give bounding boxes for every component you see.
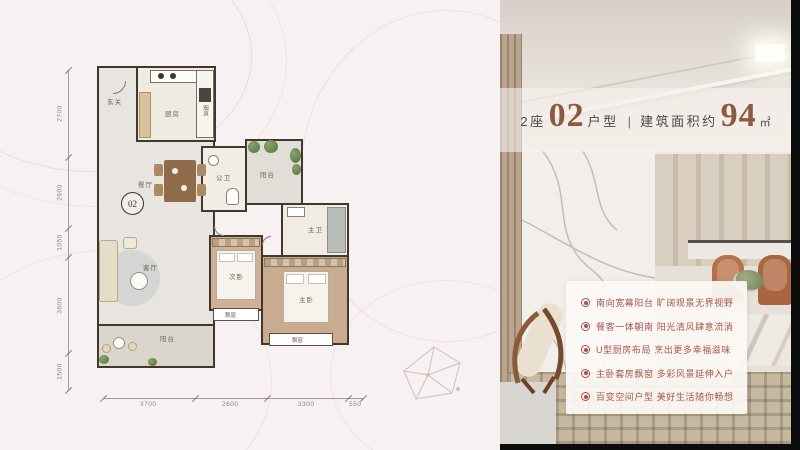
block-label: 2座 <box>520 111 545 130</box>
door-arc <box>262 236 280 254</box>
bottom-edge-bar <box>500 444 791 450</box>
cooktop-icon <box>158 73 164 79</box>
room-label-dining: 餐厅 <box>138 179 153 189</box>
balcony-chair-icon <box>102 344 111 353</box>
plant-icon <box>248 141 260 153</box>
dim-2700: 2700 <box>57 105 64 121</box>
washbasin-icon <box>287 207 305 217</box>
plate-icon <box>172 168 178 174</box>
feature-text: 百变空间户型 美好生活随你畅想 <box>596 390 734 403</box>
area-unit: ㎡ <box>760 114 771 130</box>
room-label-kitchen: 厨房 <box>165 108 180 118</box>
kitchen-sink-icon <box>199 88 211 102</box>
cooktop-icon <box>170 73 176 79</box>
dim-3700: 3700 <box>140 401 156 408</box>
wardrobe-icon <box>264 258 346 267</box>
plant-icon <box>99 355 109 364</box>
feature-card: 南向宽幕阳台 旷阔观景无界视野 餐客一体朝南 阳光清风肆意流淌 U型厨房布局 烹… <box>566 281 747 414</box>
room-label-balcony-bottom: 阳台 <box>160 333 175 343</box>
dining-chair-icon <box>197 184 206 196</box>
room-label-balcony-top: 阳台 <box>260 169 275 179</box>
washbasin-icon <box>208 155 219 166</box>
dining-chair-icon <box>154 164 163 176</box>
room-label-master-bedroom: 主卧 <box>299 294 314 304</box>
room-label-bedroom-2: 次卧 <box>229 271 244 281</box>
interior-photo: 2座 02 户型 | 建筑面积约 94 ㎡ 南向宽幕阳台 旷阔观景无界视野 餐客… <box>500 0 791 444</box>
sofa <box>99 240 118 302</box>
crystal-doodle <box>398 345 470 407</box>
feature-row: 主卧套房飘窗 多彩风景延伸入户 <box>581 367 747 380</box>
kitchen-cabinet-left <box>139 92 151 138</box>
bullet-icon <box>581 392 590 401</box>
unit-type-label: 户型 <box>588 111 619 130</box>
coffee-table <box>130 272 148 290</box>
dimension-line-left <box>68 70 69 390</box>
bullet-icon <box>581 298 590 307</box>
dimension-tick <box>65 387 72 394</box>
dimension-line-bottom <box>103 398 363 399</box>
dim-2600-left: 2600 <box>57 184 64 200</box>
pillow-icon <box>286 274 304 284</box>
dining-chair-icon <box>154 184 163 196</box>
armchair-icon <box>123 237 137 249</box>
unit-number-badge: 02 <box>121 192 144 215</box>
feature-text: U型厨房布局 烹出更多幸福滋味 <box>596 343 731 356</box>
ceiling-light-icon <box>755 44 785 62</box>
unit-title: 2座 02 户型 | 建筑面积约 94 ㎡ <box>500 97 791 135</box>
dim-2600: 2600 <box>222 401 238 408</box>
feature-text: 南向宽幕阳台 旷阔观景无界视野 <box>596 296 734 309</box>
area-label: 建筑面积约 <box>640 111 718 130</box>
feature-row: 南向宽幕阳台 旷阔观景无界视野 <box>581 296 747 309</box>
balcony-chair-icon <box>128 342 137 351</box>
bullet-icon <box>581 345 590 354</box>
dim-1050: 1050 <box>57 234 64 250</box>
feature-text: 主卧套房飘窗 多彩风景延伸入户 <box>596 367 734 380</box>
pillow-icon <box>237 253 253 262</box>
bullet-icon <box>581 369 590 378</box>
title-divider: | <box>628 114 631 129</box>
dining-chair-icon <box>197 164 206 176</box>
chair-cushion <box>763 259 787 291</box>
feature-text: 餐客一体朝南 阳光清风肆意流淌 <box>596 320 734 333</box>
plant-icon <box>290 148 301 163</box>
plate-icon <box>181 185 187 191</box>
room-label-flue: 烟道 <box>201 105 209 116</box>
room-label-bay-master: 飘窗 <box>292 336 303 344</box>
dining-table <box>164 160 196 202</box>
shower-icon <box>327 207 346 253</box>
room-label-master-bath: 主卫 <box>308 224 323 234</box>
dim-550: 550 <box>349 401 361 408</box>
right-edge-bar <box>791 0 800 450</box>
room-label-living: 客厅 <box>143 262 158 272</box>
pillow-icon <box>308 274 326 284</box>
balcony-table-icon <box>113 337 125 349</box>
area-value: 94 <box>718 97 760 135</box>
wardrobe-icon <box>212 238 260 247</box>
toilet-icon <box>226 188 239 205</box>
plant-icon <box>148 358 157 366</box>
plant-icon <box>264 140 278 153</box>
room-label-entry: 玄关 <box>107 96 122 106</box>
plant-icon <box>292 164 301 175</box>
pillow-icon <box>219 253 235 262</box>
feature-row: U型厨房布局 烹出更多幸福滋味 <box>581 343 747 356</box>
feature-row: 百变空间户型 美好生活随你畅想 <box>581 390 747 403</box>
poster: 玄关 厨房 烟道 公卫 阳台 餐厅 客厅 主卫 次卧 飘窗 主卧 飘窗 阳台 0… <box>0 0 800 450</box>
room-label-guest-bath: 公卫 <box>216 172 231 182</box>
dim-3600: 3600 <box>57 297 64 313</box>
room-label-bay-2: 飘窗 <box>225 311 236 319</box>
unit-number: 02 <box>546 97 588 135</box>
dim-3300: 3300 <box>298 401 314 408</box>
door-arc <box>214 216 234 236</box>
kitchen-counter-right <box>196 70 214 138</box>
bullet-icon <box>581 322 590 331</box>
dim-1500: 1500 <box>57 363 64 379</box>
feature-row: 餐客一体朝南 阳光清风肆意流淌 <box>581 320 747 333</box>
